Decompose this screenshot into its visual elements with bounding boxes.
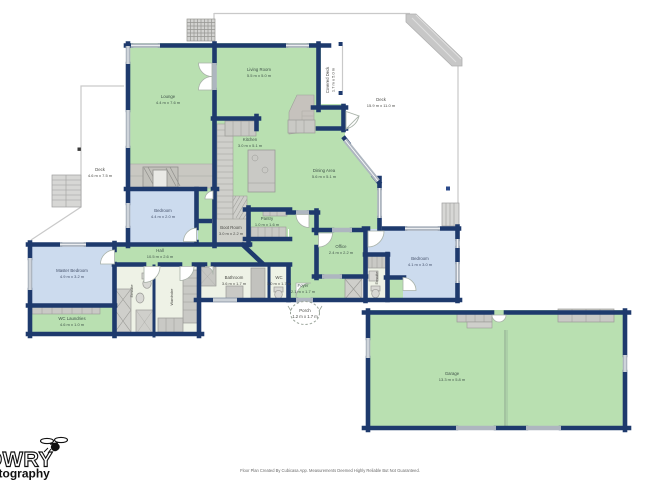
- svg-text:Garage: Garage: [445, 371, 460, 376]
- svg-text:Pantry: Pantry: [261, 216, 274, 221]
- svg-text:15.9 m x 11.0 m: 15.9 m x 11.0 m: [367, 103, 396, 108]
- svg-text:Deck: Deck: [95, 167, 106, 172]
- svg-text:Porch: Porch: [299, 308, 311, 313]
- svg-text:Ensuite: Ensuite: [374, 272, 379, 285]
- svg-text:Office: Office: [335, 244, 347, 249]
- svg-text:Floor Plan Created By Cubicasa: Floor Plan Created By Cubicasa App. Meas…: [240, 468, 420, 473]
- svg-text:3.6 m x 1.7 m: 3.6 m x 1.7 m: [222, 281, 247, 286]
- svg-text:3.0 m x 5.1 m: 3.0 m x 5.1 m: [238, 143, 263, 148]
- svg-text:Ensuite: Ensuite: [129, 285, 134, 298]
- svg-text:Hall: Hall: [156, 248, 163, 253]
- svg-text:Lounge: Lounge: [161, 94, 176, 99]
- svg-text:Master Bedroom: Master Bedroom: [56, 268, 88, 273]
- svg-text:4.1 m x 3.0 m: 4.1 m x 3.0 m: [408, 262, 433, 267]
- svg-text:2.1 m x 1.7 m: 2.1 m x 1.7 m: [291, 289, 316, 294]
- svg-text:1.7 m x 5.0 m: 1.7 m x 5.0 m: [331, 67, 336, 92]
- svg-text:4.4 m x 7.6 m: 4.4 m x 7.6 m: [156, 100, 181, 105]
- svg-text:5.6 m x 5.1 m: 5.6 m x 5.1 m: [312, 174, 337, 179]
- svg-text:1.0 m x 1.6 m: 1.0 m x 1.6 m: [255, 222, 280, 227]
- svg-text:Bedroom: Bedroom: [411, 256, 429, 261]
- svg-text:Bathroom: Bathroom: [225, 275, 244, 280]
- svg-text:2.4 m x 2.2 m: 2.4 m x 2.2 m: [329, 250, 354, 255]
- svg-text:Deck: Deck: [376, 97, 387, 102]
- svg-text:3.0 m x 2.2 m: 3.0 m x 2.2 m: [219, 231, 244, 236]
- svg-text:1.2 m x 1.7 m: 1.2 m x 1.7 m: [292, 314, 318, 319]
- svg-text:Dining Area: Dining Area: [313, 168, 336, 173]
- svg-text:Covered Deck: Covered Deck: [325, 66, 330, 93]
- svg-text:Foyer: Foyer: [298, 283, 310, 288]
- svg-text:Bedroom: Bedroom: [154, 208, 172, 213]
- svg-text:4.6 m x 7.5 m: 4.6 m x 7.5 m: [88, 173, 113, 178]
- svg-text:Wardrobe: Wardrobe: [169, 289, 174, 306]
- svg-text:4.6 m x 1.0 m: 4.6 m x 1.0 m: [60, 322, 85, 327]
- svg-text:Boot Room: Boot Room: [220, 225, 242, 230]
- svg-text:10.5 m x 2.6 m: 10.5 m x 2.6 m: [147, 254, 174, 259]
- svg-text:WC: WC: [275, 275, 282, 280]
- svg-text:4.9 m x 3.2 m: 4.9 m x 3.2 m: [60, 274, 85, 279]
- svg-text:1.0 m x 1.7 m: 1.0 m x 1.7 m: [267, 281, 292, 286]
- svg-text:5.5 m x 5.0 m: 5.5 m x 5.0 m: [247, 73, 272, 78]
- svg-text:Living Room: Living Room: [247, 67, 271, 72]
- svg-text:4.4 m x 2.0 m: 4.4 m x 2.0 m: [151, 214, 176, 219]
- svg-text:WC Laundries: WC Laundries: [58, 316, 85, 321]
- svg-text:tography: tography: [0, 467, 50, 481]
- svg-text:13.3 m x 5.8 m: 13.3 m x 5.8 m: [439, 377, 466, 382]
- svg-text:Kitchen: Kitchen: [243, 137, 258, 142]
